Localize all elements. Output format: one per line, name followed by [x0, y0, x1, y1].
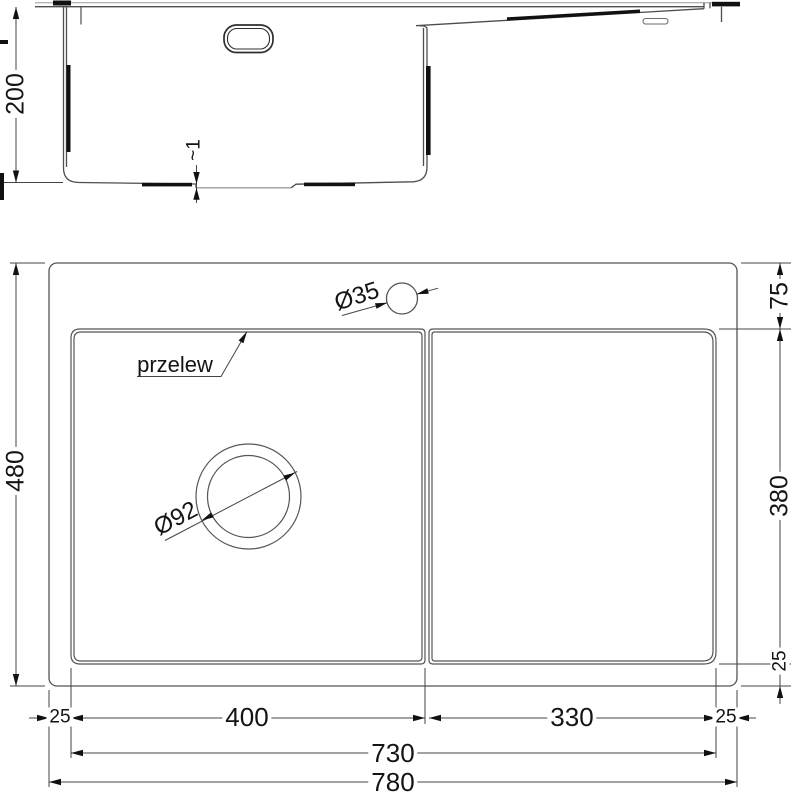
dim-label-bowl-width-400: 400	[222, 704, 271, 730]
sink-technical-drawing: 200 ~1 480 przelew Ø35 Ø92 75 380 25 25 …	[0, 0, 800, 800]
section-right-wall-pad	[426, 66, 431, 155]
plan-bowl-outer	[71, 329, 425, 664]
dim-arrow-upper-right	[283, 473, 295, 481]
dim-label-height-480: 480	[4, 447, 29, 495]
arrow-380-top	[777, 329, 783, 341]
dim-label-depth-200: 200	[4, 70, 29, 118]
arrow-730-left	[71, 750, 83, 756]
overflow-label: przelew	[137, 354, 213, 376]
dim-arrow-down	[193, 172, 199, 184]
section-drain-groove	[643, 19, 668, 25]
dim-label-rim-bottom-25: 25	[771, 647, 790, 674]
arrow-780-left	[49, 779, 61, 785]
arrow-75-top	[777, 263, 783, 275]
leader-arrow	[239, 332, 247, 344]
dim-label-rim-left-25: 25	[46, 708, 73, 727]
plan-view	[10, 263, 791, 787]
section-drainboard-pad	[507, 11, 640, 19]
plan-bowl-inner	[74, 332, 422, 661]
dim-label-rim-top-75: 75	[768, 279, 793, 313]
arrow-400-right	[413, 715, 425, 721]
arrow-730-right	[704, 750, 716, 756]
section-edge-mark-upper	[0, 40, 8, 44]
plan-drainboard-outer	[429, 329, 716, 664]
plan-tap-hole-circle	[387, 283, 418, 314]
section-bowl-right-bottom	[291, 26, 427, 188]
section-edge-mark-lower	[0, 173, 4, 200]
dim-arrow-lower-left	[202, 512, 214, 520]
arrow-75-bottom	[777, 317, 783, 329]
plan-outer-rim	[49, 263, 737, 686]
section-top-left-clip	[53, 1, 71, 6]
dim-label-drainer-width-330: 330	[547, 704, 596, 730]
section-bowl-left-wall	[64, 7, 197, 188]
plan-drainboard-inner	[432, 332, 713, 661]
dim-label-bowl-height-380: 380	[768, 472, 793, 520]
dim-arrow-up	[13, 263, 19, 275]
dim-arrow-down	[13, 674, 19, 686]
dim-label-overall-width-780: 780	[368, 769, 417, 795]
arrow-25-bottom	[777, 686, 783, 698]
section-bottom-pad-right	[304, 183, 355, 187]
section-bottom-pad-left	[142, 183, 192, 187]
section-overflow-hole-inner	[228, 29, 270, 50]
dim-arrow-up	[193, 188, 199, 200]
dim-label-inner-width-730: 730	[368, 740, 417, 766]
section-view	[0, 1, 740, 204]
arrow-330-left	[429, 715, 441, 721]
dim-arrow-right	[417, 288, 429, 294]
dim-label-rim-right-25: 25	[712, 708, 739, 727]
arrow-780-right	[725, 779, 737, 785]
section-overflow-hole-outer	[224, 25, 273, 53]
section-left-wall-pad	[67, 65, 71, 152]
drawing-linework	[0, 0, 800, 800]
dim-label-step-1: ~1	[185, 139, 204, 161]
dim-arrow-up	[13, 7, 19, 19]
section-right-rim-bar	[712, 2, 740, 7]
dim-arrow-down	[13, 171, 19, 183]
